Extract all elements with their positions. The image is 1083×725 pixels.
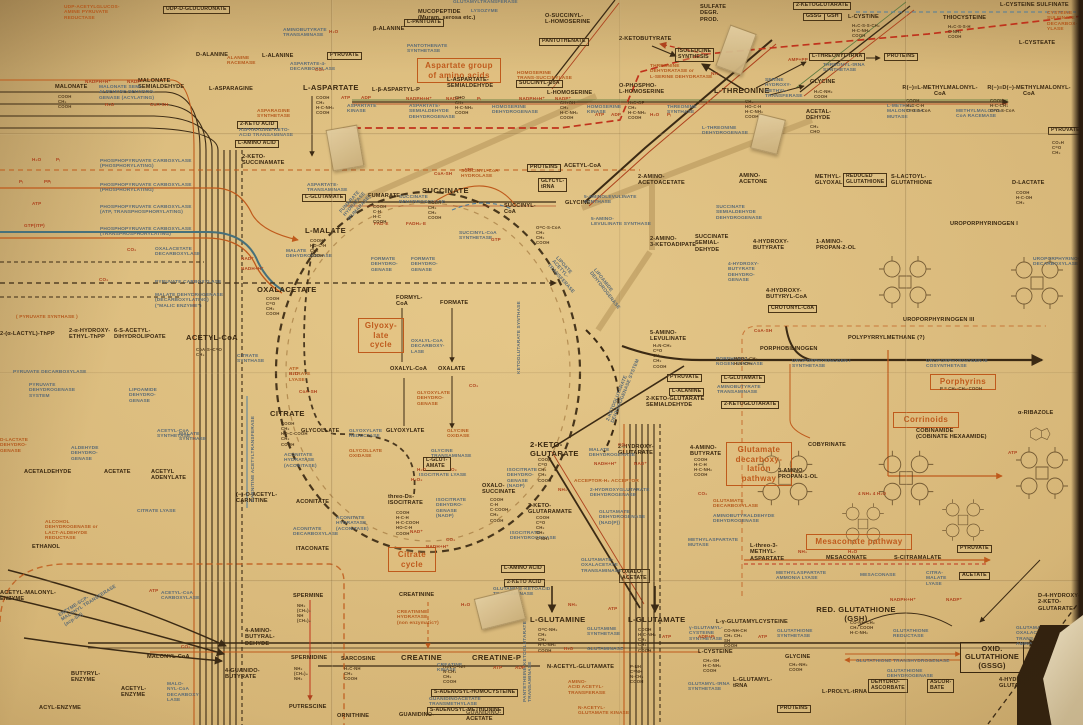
metabolite-label: S-CITRAMALATE (894, 555, 942, 561)
enzyme-label: OXALYL-CoA DECARBOXY- LASE (411, 339, 444, 355)
enzyme-label: PYRUVATE DEHYDROGENASE SYSTEM (29, 383, 75, 399)
cofactor-label: CO₂ (127, 247, 136, 252)
enzyme-label: ACONITATE DECARBOXYLASE (293, 527, 338, 538)
enzyme-label: ACETYL-CoA CARBOXYLASE (161, 591, 199, 602)
chemical-formula: COOH HO-C-H CH₂ COOH (310, 238, 326, 259)
enzyme-label: ISOCITRATE LYASE (419, 473, 467, 478)
metabolite-label: L-CYSTEINE (698, 649, 733, 655)
chemical-formula: O=C-NH₂ CH₂ CH₂ H-C-NH₂ COOH (538, 627, 558, 653)
metabolite-label: O-SUCCINYL- L-HOMOSERINE (545, 13, 590, 26)
biochemical-pathways-poster-photo: Aspartate group of amino acidsGlyoxy- la… (0, 0, 1083, 725)
chemical-formula: COOH CH₂ HO-C-COOH CH₂ COOH (281, 421, 308, 447)
enzyme-label: 4-HYDROXY- BUTYRATE DEHYDRO- GENASE (728, 262, 759, 283)
metabolite-label: ACETATE (959, 572, 990, 580)
metabolite-label: OXALATE (438, 366, 465, 372)
metabolite-label: BUTYRYL- ENZYME (71, 671, 100, 684)
cofactor-label: ATP (32, 201, 41, 206)
cofactor-label: ATP (149, 588, 158, 593)
metabolite-label: ACETALDEHYDE (24, 469, 71, 475)
metabolite-label: 5-AMINO- LEVULINATE (650, 330, 686, 343)
enzyme-label: 2-HYDROXYGLUTARATE DEHYDROGENASE (590, 488, 650, 499)
cofactor-label: CO₂ (446, 537, 455, 542)
metabolite-label: D-ALANINE (196, 52, 228, 58)
metabolite-label: PYRUVATE (667, 374, 702, 382)
chemical-formula: COOH H₃C-C-H C=O-S-CoA (906, 98, 931, 113)
cofactor-label: NADH+H⁺ (241, 266, 264, 271)
metabolite-label: SARCOSINE (341, 656, 376, 662)
photo-edge-shadow (1071, 0, 1083, 725)
enzyme-label: FORMATE DEHYDRO- GENASE (411, 257, 438, 273)
enzyme-label: PANTOTHENATE SYNTHETASE (407, 44, 447, 55)
enzyme-label: ALCOHOL DEHYDROGENASE or LACT-ALDEHYDE R… (45, 520, 98, 541)
metabolite-label: 2-KETO-GLUTARATE SEMIALDEHYDE (646, 396, 704, 409)
enzyme-label: ISOCITRATE DEHYDRO- GENASE (NADP) (507, 468, 537, 489)
cofactor-label: NH₃ (798, 549, 807, 554)
pathway-group-box: Citrate cycle (388, 547, 436, 572)
chemical-formula: H₂N-CH₂ C=O CH₂ CH₂ COOH (653, 343, 672, 369)
metabolite-label: ITACONATE (296, 546, 329, 552)
cofactor-label: CO₂ (618, 442, 627, 447)
pathway-group-box: Corrinoids (893, 412, 959, 428)
metabolite-label: L-γ-GLUTAMYLCYSTEINE (716, 619, 788, 625)
metabolite-label: OXALYL-CoA (390, 366, 427, 372)
cofactor-label: GTP(ITP) (24, 223, 45, 228)
metabolite-label: 2-KETOGLUTARATE (721, 401, 779, 409)
enzyme-label: PANTETHEINE-KETOGLUTARATE TRANSAMINASE (523, 621, 534, 702)
enzyme-label: UDP-ACETYLGLUCOS- AMINE PYRUVATE REDUCTA… (64, 5, 120, 21)
metabolite-label: L-AMINO ACID (235, 140, 279, 148)
enzyme-label: 5-AMINO- LEVULINATE SYNTHASE (591, 217, 651, 228)
cofactor-label: CO₂ (698, 491, 707, 496)
metabolite-label: L-GLUTAMATE (302, 194, 346, 202)
enzyme-label: HOMOSERINE TRANS-SUCCINYLASE (517, 71, 572, 82)
enzyme-label: GLUTAMATE DEHYDROGENASE (NAD(P)) (599, 510, 645, 526)
cofactor-label: Pᵢ (477, 96, 481, 101)
cofactor-label: ATP (595, 112, 604, 117)
enzyme-label: SUCCINATE SEMIALDEHYDE DEHYDROGENASE (716, 205, 762, 221)
chemical-formula: NH₂ (CH₂)₃ NH (CH₂)₄ (297, 603, 311, 624)
cofactor-label: NAD⁺ (634, 461, 647, 466)
metabolite-label: ASCOR- BATE (927, 679, 954, 693)
metabolite-label: 4-GUANIDO- BUTYRATE (225, 668, 260, 681)
cofactor-label: H₂O (105, 102, 114, 107)
metabolite-label: PYRUVATE (957, 545, 992, 553)
chemical-formula: CO-NH-CH₂ CH₂ COOH H-C-NH₂ (850, 620, 875, 635)
pathway-group-box: Mesaconate pathway (806, 534, 912, 550)
enzyme-label: ALDEHYDE DEHYDRO- GENASE (71, 446, 99, 462)
enzyme-label: PHOSPHOPYRUVATE CARBOXYLASE (ATP, TRANSP… (100, 205, 192, 216)
enzyme-label: MALATE SYNTHASE (179, 432, 206, 443)
enzyme-label: ACONITATE HYDRATASE (ACONITASE) (336, 516, 369, 532)
cofactor-label: ATP (1008, 450, 1017, 455)
chemical-formula: CHO CH₂ H-C-NH₂ COOH (455, 95, 473, 116)
metabolite-label: OXALO- ACETATE (619, 569, 650, 583)
enzyme-label: MALATE DEHYDROGENASE (DECARBOXYLATING) (… (155, 293, 223, 309)
metabolite-label: L-AMINO ACID (501, 565, 545, 573)
metabolite-label: 2-KETO- GLUTARATE (530, 441, 579, 458)
metabolite-label: R(−)≡D(−)-METHYLMALONYL- CoA (980, 85, 1078, 98)
cofactor-label: AMP+PP (788, 57, 808, 62)
cofactor-label: ADP+Pᵢ (698, 634, 715, 639)
metabolite-label: R(−)≡L-METHYLMALONYL- CoA (896, 85, 984, 98)
metabolite-label: UDP-D-GLUCURONATE (163, 6, 230, 14)
metabolite-label: SPERMIDINE (291, 655, 327, 661)
enzyme-label: ( PYRUVATE SYNTHASE ) (16, 315, 78, 320)
metabolite-label: 2-(α-LACTYL)-ThPP (0, 331, 55, 337)
metabolite-label: L-GLUTAMATE (628, 616, 686, 625)
metabolite-label: GSSG (803, 13, 825, 21)
cofactor-label: NADP⁺ (127, 79, 143, 84)
metabolite-label: 4-HYDROXY- BUTYRATE (753, 239, 789, 252)
enzyme-label: GLUTAMINASE (587, 647, 623, 652)
enzyme-label: GLYOXYLATE REDUCTASE (349, 429, 382, 440)
enzyme-label: 5-AMINOLEVULINATE SYNTHASE (584, 195, 637, 206)
metabolite-label: L-PANTOATE (404, 19, 444, 27)
cofactor-label: CO₂ (181, 644, 190, 649)
chemical-formula: COOH CH₂ H-C-NH₂ COOH (316, 95, 334, 116)
cofactor-label: GTP (491, 237, 501, 242)
enzyme-label: ALANINE RACEMASE (227, 56, 256, 67)
enzyme-label: MALATE DEHYDROGENASE (589, 448, 635, 459)
metabolite-label: ACETYL- ENZYME (121, 686, 146, 699)
enzyme-label: PHOSPHOPYRUVATE CARBOXYLASE (PHOSPHORYLA… (100, 159, 192, 170)
metabolite-label: SUCCINYL- CoA (504, 203, 536, 216)
chemical-formula: CoA-S~C=O CH₃ (196, 347, 222, 357)
enzyme-label: CREATININE HYDRATASE (non enzymatic?) (397, 610, 439, 626)
metabolite-label: ACONITATE (296, 499, 329, 505)
enzyme-label: GLYCINE TRANSAMINASE (431, 449, 471, 460)
enzyme-label: N-ACETYL- GLUTAMATE KINASE (578, 706, 629, 717)
metabolite-label: L-CYSTINE (848, 14, 879, 20)
metabolite-label: 2-KETOGLUTARATE (793, 2, 851, 10)
chemical-formula: COOH H-C-CH₃ C=O-S-CoA (990, 98, 1015, 113)
enzyme-label: CITRA- MALATE LYASE (926, 571, 947, 587)
enzyme-label: AMINOBUTYRATE TRANSAMINASE (283, 28, 327, 39)
metabolite-label: OXID. GLUTATHIONE (GSSG) (960, 642, 1024, 673)
chemical-formula: COOH C=O CH₂ COOH (266, 296, 280, 317)
cofactor-label: ADP (515, 665, 525, 670)
metabolite-label: FORMATE (440, 300, 468, 306)
metabolite-label: CROTONYL-CoA (768, 305, 817, 313)
enzyme-label: LYSOZYME (471, 9, 498, 14)
metabolite-label: GLYCINE (785, 654, 810, 660)
enzyme-label: GUANIDINOACETATE TRANSMETHYLASE (429, 697, 481, 708)
cofactor-label: O₂ (451, 467, 457, 472)
enzyme-label: THREONINE DEHYDRATASE or L-SERINE DEHYDR… (650, 64, 713, 80)
cofactor-label: CoA-SH (754, 328, 772, 333)
enzyme-label: LIPOAMIDE DEHYDROGENASE (588, 268, 625, 311)
cofactor-label: ADP (361, 95, 371, 100)
chemical-formula: CO-NH-CH CH₂ CH₂ SH COOH (724, 628, 747, 649)
chemical-formula: H₂C-OP CH₂ H-C-NH₂ COOH (628, 100, 646, 121)
cofactor-label: NADPH+H⁺ (406, 96, 432, 101)
chemical-formula: CH₃ HO-C-H H-C-NH₂ COOH (745, 99, 763, 120)
enzyme-label: GLUTAMATE DECARBOXYLASE (713, 499, 758, 510)
metabolite-label: MALONATE (55, 84, 87, 90)
cofactor-label: CoA-SH (150, 102, 168, 107)
metabolite-label: THIOCYSTEINE (943, 15, 986, 21)
enzyme-label: UROPORPHYRINOGEN I SYNTHETASE (792, 359, 851, 370)
metabolite-label: L-THREONINE (714, 87, 770, 96)
enzyme-label: MALO- NYL-CoA DECARBOXY- LASE (167, 682, 200, 703)
metabolite-label: REDUCED GLUTATHIONE (843, 173, 887, 187)
enzyme-label: GLYCINE OXIDASE (447, 429, 470, 440)
metabolite-label: CITRATE (270, 410, 305, 419)
metabolite-label: CREATININE (399, 592, 434, 598)
cofactor-label: ATP (464, 167, 473, 172)
enzyme-label: ASPARAGINE-KETO- ACID TRANSAMINASE (239, 128, 293, 139)
chemical-formula: H₂N-C=NH N-CH₃ CH₂ COOH (443, 664, 466, 685)
metabolite-label: PUTRESCINE (289, 704, 327, 710)
enzyme-label: SERINE HYDROXY- METHYL- TRANSFERASE (765, 78, 803, 99)
cofactor-label: NADPH+H⁺ (85, 79, 111, 84)
chemical-formula: COOH H-C-OH CH₃ (1016, 190, 1032, 205)
metabolite-label: FORMYL- CoA (396, 295, 423, 308)
metabolite-label: L-ASPARTATE- SEMIALDEHYDE (447, 77, 493, 90)
metabolite-label: 2-KETO ACID (504, 579, 545, 587)
enzyme-label: ISOCITRATE DEHYDRO- GENASE (NADP) (436, 498, 466, 519)
cofactor-label: 4 NH₃ 4 H₂O (858, 491, 886, 496)
chemical-formula: HOOC-CH₂ H₂N-CH₂ (734, 356, 758, 366)
metabolite-label: L-GLUTAMINE (530, 616, 586, 625)
cofactor-label: ATP (493, 665, 502, 670)
metabolite-label: SUCCINATE SEMIAL- DEHYDE (695, 234, 729, 253)
cofactor-label: NADPH+H⁺ (519, 96, 545, 101)
enzyme-label: GLUTATHIONE DEHYDROGENASE (887, 669, 933, 680)
metabolite-label: L-ALANINE (262, 53, 294, 59)
chemical-formula: COOH C-H H-C COOH (373, 204, 387, 225)
metabolite-label: L-GLUTAMATE (721, 375, 765, 383)
chemical-formula: H₂C-NH CH₃ COOH (344, 666, 361, 681)
metabolite-label: UROPORPHYRINOGEN III (903, 317, 974, 323)
metabolite-label: L-THREONYL-tRNA (809, 53, 865, 61)
metabolite-label: AMINO- ACETONE (739, 173, 767, 186)
chemical-formula: P = CH₂·CH₂·COOH (940, 386, 982, 391)
cofactor-label: NH₃ (711, 71, 720, 76)
metabolite-label: ACETAL- DEHYDE (806, 109, 831, 122)
enzyme-label: PYRUVATE CARBOXYLASE (155, 280, 222, 285)
cofactor-label: NH₃ (568, 602, 577, 607)
enzyme-label: MESACONASE (860, 573, 896, 578)
metabolite-label: PORPHOBILINOGEN (760, 346, 818, 352)
metabolite-label: ISOLEUCINE SYNTHESIS (675, 48, 714, 62)
chemical-formula: COOH H-C-H H-C-NH₂ COOH (694, 457, 712, 478)
cofactor-label: NADPH+H⁺ (890, 597, 916, 602)
metabolite-label: L-β-ASPARTYL-P (372, 87, 420, 93)
metabolite-label: L-GLUTAMYL- tRNA (733, 677, 772, 690)
metabolite-label: CREATINE-P (472, 654, 521, 663)
metabolite-label: 3-AMINO- PROPAN-1-OL (778, 468, 818, 481)
chemical-formula: COOH C=O CH₂ CH₂ C-NH₂ (536, 515, 550, 541)
enzyme-label: AMINOBUTYRALDEHYDE DEHYDROGENASE (713, 514, 775, 525)
metabolite-label: ACYL-ENZYME (39, 705, 81, 711)
enzyme-label: ENZYME-SCP- MALONYL TRANSFERASE (acp-SH) (58, 580, 121, 627)
chemical-formula: COOH C=O CH₂ CH₂ COOH (538, 457, 552, 483)
enzyme-label: PHOSPHOPYRUVATE CARBOXYLASE (TRANSPHOSPH… (100, 227, 192, 238)
enzyme-label: ASPARAGINE SYNTHETASE (257, 109, 290, 120)
metabolite-label: 2-α-HYDROXY- ETHYL-ThPP (69, 328, 110, 341)
enzyme-label: GLUTATHIONE SYNTHETASE (777, 629, 813, 640)
enzyme-label: ASPARTATE KINASE (347, 104, 377, 115)
chemical-formula: H₂C-NH₂ COOH (814, 89, 833, 99)
cofactor-label: Pᵢ (19, 179, 23, 184)
enzyme-label: CITRATE SYNTHASE (237, 354, 264, 365)
enzyme-label: GLYOXYLATE DEHYDRO- GENASE (417, 391, 450, 407)
metabolite-label: PROTEINS (884, 53, 918, 61)
enzyme-label: GLUTAMYL-tRNA SYNTHETASE (688, 682, 730, 693)
cofactor-label: ATP (341, 95, 350, 100)
metabolite-label: 2-AMINO- 3-KETOADIPATE (650, 236, 696, 249)
cofactor-label: NAD⁺ (241, 256, 254, 261)
cofactor-label: FADH₂·E (406, 221, 426, 226)
enzyme-label: FORMATE DEHYDRO- GENASE (371, 257, 398, 273)
chemical-formula: CH₂-NH₂ COOH (789, 662, 808, 672)
metabolite-label: L-PROLYL-tRNA (822, 689, 867, 695)
cofactor-label: ATP (608, 606, 617, 611)
cofactor-label: H₂O (848, 549, 857, 554)
cofactor-label: CO₂ (99, 277, 108, 282)
chemical-formula: P-NH C=NH N-CH₃ COOH (630, 664, 644, 685)
metabolite-label: GLYCINE (810, 79, 835, 85)
enzyme-label: AMINO- ACID ACETYL- TRANSFERASE (568, 680, 606, 696)
cofactor-label: ATP (758, 634, 767, 639)
chemical-formula: H₂C-S-S-H C-NH₂ COOH (948, 24, 971, 39)
metabolite-label: OXALACETATE (257, 286, 317, 295)
metabolite-label: COBINAMIDE (COBINATE HEXAAMIDE) (916, 428, 987, 441)
metabolite-label: ETHANOL (32, 544, 60, 550)
metabolite-label: S-ADENOSYL-HOMOCYSTEINE (431, 689, 518, 697)
enzyme-label: PYRUVATE DECARBOXYLASE (13, 370, 86, 375)
enzyme-label: CITRATE LYASE (137, 509, 176, 514)
enzyme-label: L-THREONINE DEHYDROGENASE (702, 126, 748, 137)
enzyme-label: ASPARTATE-4- DECARBOXYLASE (290, 62, 335, 73)
metabolite-label: 4-AMINO- BUTYRAL- DEHYDE (245, 628, 275, 647)
metabolite-label: ACETATE (104, 469, 131, 475)
cofactor-label: H₂O (461, 602, 470, 607)
cofactor-label: H₂O (289, 371, 298, 376)
enzyme-label: ACCEPTOR-H₂ ACCEPTOR (574, 479, 639, 484)
enzyme-label: THREONYL-tRNA SYNTHETASE (823, 63, 865, 74)
metabolite-label: UROPORPHYRINOGEN I (950, 221, 1018, 227)
cofactor-label: ATP (662, 634, 671, 639)
metabolite-label: ACETYL-CoA (186, 334, 238, 343)
enzyme-label: UROPORPHYRINOGEN III COSYNTHETASE (926, 359, 988, 370)
metabolite-label: L-ASPARTATE (303, 84, 359, 93)
chemical-formula: COOH H-C-NH₂ CH₂ CH₂ COOH (638, 627, 656, 653)
cofactor-label: H₂O (417, 467, 426, 472)
cofactor-label: ADP (611, 112, 621, 117)
pathway-group-box: Glyoxy- late cycle (358, 318, 404, 353)
cofactor-label: H₂O (564, 646, 573, 651)
enzyme-label: ASPARTATE- TRANSAMINASE (307, 183, 347, 194)
metabolite-label: PYRUVATE (327, 52, 362, 60)
chemical-formula: NH₂ (CH₂)₄ NH₂ (294, 666, 308, 681)
metabolite-label: MESACONATE (826, 555, 867, 561)
metabolite-label: DEHYDRO- ASCORBATE (868, 679, 908, 693)
metabolite-label: 2-KETO- GLUTARAMATE (528, 503, 572, 516)
metabolite-label: GSH (824, 13, 842, 21)
metabolite-label: 2-KETO- SUCCINAMATE (242, 154, 285, 167)
enzyme-label: GLUTATHIONE REDUCTASE (893, 629, 929, 640)
metabolite-label: FUMARATE (368, 193, 400, 199)
metabolite-label: COBYRINATE (808, 442, 846, 448)
metabolite-label: SULFATE DEGR. PROD. (700, 4, 726, 23)
cofactor-label: NADH+H⁺ (594, 461, 617, 466)
enzyme-label: CARNITINE ACETYLTRANSFERASE (251, 416, 256, 502)
enzyme-label: METHYLASPARTATE MUTASE (688, 538, 738, 549)
metabolite-label: 4-AMINO- BUTYRATE (690, 445, 721, 458)
chemical-formula: CH₃ CHO (810, 124, 820, 134)
chemical-formula: CO₂H C=O CH₃ (1052, 140, 1064, 155)
enzyme-label: KETOGLUTARATE SYNTHASE (517, 301, 522, 374)
metabolite-label: METHYL- GLYOXAL (815, 174, 843, 187)
metabolite-label: PROTEINS (527, 164, 561, 172)
metabolite-label: GLYOXYLATE (386, 428, 425, 434)
enzyme-label: LIPOAMIDE DEHYDRO- GENASE (129, 388, 157, 404)
metabolite-label: L-ALANINE (669, 388, 704, 396)
metabolite-label: POLYPYRRYLMETHANE (?) (848, 335, 925, 341)
metabolite-label: SPERMINE (293, 593, 323, 599)
enzyme-label: 2-KETOGLUTARATE DEHYDROGENASE SYSTEM (606, 357, 642, 424)
metabolite-label: ACETYL-MALONYL- ENZYME (0, 590, 56, 603)
metabolite-label: L-CYSTEATE (1019, 40, 1055, 46)
metabolite-label: threo-Ds- ISOCITRATE (388, 494, 423, 507)
metabolite-label: 1-AMINO- PROPAN-2-OL (816, 239, 856, 252)
enzyme-label: GLUTATHIONE TRANSHYDROGENASE (856, 659, 950, 664)
enzyme-label: MALONATE SEMI- ALDEHYDE DEHYDRO- GENASE … (99, 85, 155, 101)
metabolite-label: 2-KETOBUTYRATE (619, 36, 672, 42)
metabolite-label: 6-S-ACETYL- DIHYDROLIPOATE (114, 328, 166, 341)
metabolite-label: 4-HYDROXY- BUTYRYL-CoA (766, 288, 807, 301)
cofactor-label: CoA-SH (299, 389, 317, 394)
metabolite-label: L-CYSTEINE SULFINATE (1000, 2, 1069, 8)
metabolite-label: D-LACTATE (1012, 180, 1045, 186)
metabolite-label: 2-AMINO- ACETOACETATE (638, 174, 685, 187)
chemical-formula: CH₂-SH H-C-NH₂ COOH (703, 658, 721, 673)
cofactor-label: Pᵢ (56, 157, 60, 162)
enzyme-label: ASPARTATE- SEMIALDEHYDE DEHYDROGENASE (409, 104, 455, 120)
enzyme-label: GLUTAMINE SYNTHETASE (587, 627, 620, 638)
cofactor-label: H₂O (650, 112, 659, 117)
metabolite-label: N-ACETYL-GLUTAMATE (547, 664, 614, 670)
metabolite-label: CREATINE (401, 654, 442, 663)
metabolite-label: L-threo-3- METHYL- ASPARTATE (750, 543, 784, 562)
metabolite-label: (−)-O-ACETYL- CARNITINE (236, 492, 277, 505)
metabolite-label: L-ASPARAGINE (209, 86, 253, 92)
enzyme-label: METHYLASPARTATE AMMONIA LYASE (776, 571, 826, 582)
enzyme-label: THREONINE SYNTHASE (667, 105, 697, 116)
enzyme-label: GLUTAMYLTRANSFERASE (453, 0, 518, 5)
cofactor-label: NH₃ (558, 487, 567, 492)
metabolite-label: ORNITHINE (337, 713, 369, 719)
cofactor-label: H₂O (32, 157, 41, 162)
cofactor-label: H₂O₂ (411, 477, 423, 482)
metabolite-label: O-PHOSPHO- L-HOMOSERINE (619, 83, 664, 96)
metabolite-label: ACETYL-CoA (564, 163, 601, 169)
chemical-formula: COOH H-C-H H-C-COOH HO-C-H COOH (396, 510, 419, 536)
metabolite-label: GLYCYL- tRNA (538, 178, 567, 192)
cofactor-label: CoA-SH (434, 171, 452, 176)
cofactor-label: NADP⁺ (946, 597, 962, 602)
metabolite-label: PANTOTHENATE (539, 38, 589, 46)
enzyme-label: LIPOATE ACETYL- TRANSFERASE (546, 256, 583, 295)
metabolite-label: S-ADENOSYL-METHIONINE (427, 707, 504, 715)
labels-layer: Aspartate group of amino acidsGlyoxy- la… (0, 0, 1083, 725)
enzyme-label: ACONITATE HYDRATASE (ACONITASE) (284, 453, 317, 469)
cofactor-label: CO₂ (315, 67, 324, 72)
enzyme-label: D-LACTATE DEHYDRO- GENASE (0, 438, 28, 454)
metabolite-label: S-LACTOYL- GLUTATHIONE (891, 174, 932, 187)
